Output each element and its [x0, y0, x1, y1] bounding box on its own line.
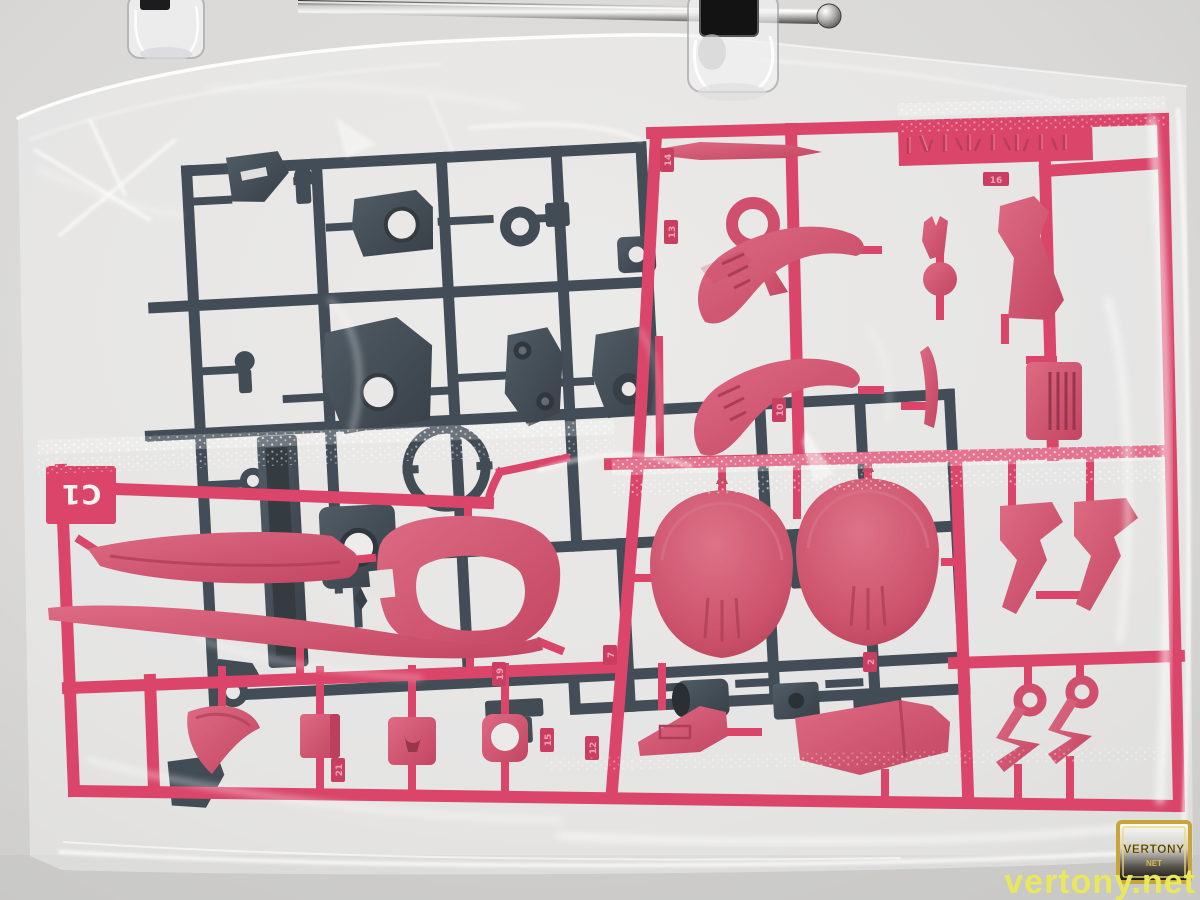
photo-plastic-model-runners-in-bag: C1: [0, 0, 1200, 900]
bag-clip-left: [128, 0, 204, 61]
plastic-bag-front: [18, 35, 1193, 875]
watermark-site-text: vertony.net: [1004, 863, 1196, 900]
badge-title: VERTONY: [1123, 842, 1184, 856]
bag-clip-right: [688, 0, 778, 101]
photo-canvas: C1: [0, 0, 1200, 900]
